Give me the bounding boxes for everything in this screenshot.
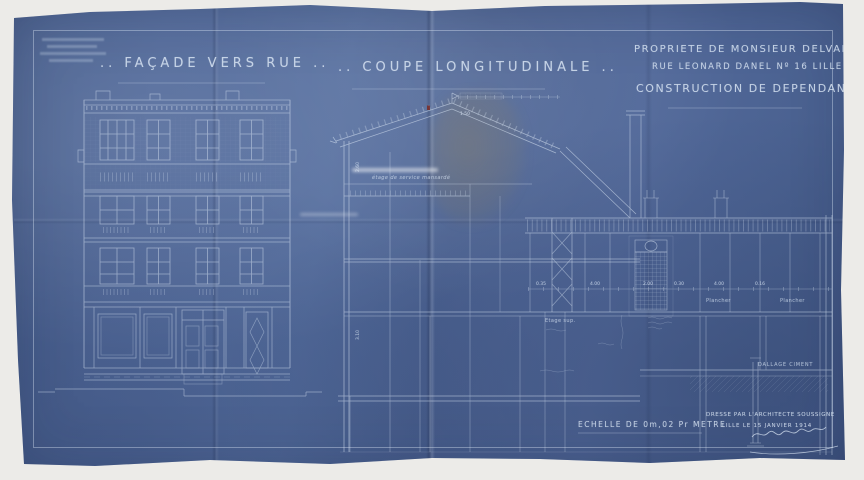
drawn-by-label: DRESSE PAR L'ARCHITECTE SOUSSIGNE <box>706 412 835 418</box>
dim-label: 2.00 <box>643 282 653 287</box>
dim-label: 0.35 <box>536 282 546 287</box>
title-block-line3: CONSTRUCTION DE DEPENDANCES <box>636 82 864 95</box>
dim-label: 0.16 <box>755 282 765 287</box>
scale-label: ECHELLE DE 0m,02 Pr METRE <box>578 420 726 429</box>
etage-annotation: Etage sup. <box>545 318 576 324</box>
blueprint-sheet: .. FAÇADE VERS RUE .. .. COUPE LONGITUDI… <box>0 0 864 480</box>
plancher-annotation: Plancher <box>706 298 731 304</box>
architect-signature <box>750 427 838 454</box>
dim-label: 1.50 <box>460 112 470 117</box>
title-block-line1: PROPRIETE DE MONSIEUR DELVALLE <box>634 44 864 55</box>
dallage-annotation: DALLAGE CIMENT <box>758 362 813 368</box>
longitudinal-section-drawing <box>330 93 832 452</box>
coupe-title: .. COUPE LONGITUDINALE .. <box>338 60 618 75</box>
dim-label: 2.60 <box>356 162 361 172</box>
facade-elevation-drawing <box>38 91 322 396</box>
dim-label: 0.30 <box>674 282 684 287</box>
red-ridge-mark <box>427 106 430 111</box>
dim-label: 3.10 <box>356 330 361 340</box>
facade-title: .. FAÇADE VERS RUE .. <box>100 56 329 71</box>
title-block-line2: RUE LEONARD DANEL Nº 16 LILLE <box>652 62 843 72</box>
place-date-label: LILLE LE 15 JANVIER 1914 <box>722 423 812 429</box>
scanned-blueprint: .. FAÇADE VERS RUE .. .. COUPE LONGITUDI… <box>0 0 864 480</box>
dim-label: 4.00 <box>590 282 600 287</box>
plancher-annotation: Plancher <box>780 298 805 304</box>
attic-annotation: étage de service mansardé <box>372 175 450 181</box>
dim-label: 4.00 <box>714 282 724 287</box>
